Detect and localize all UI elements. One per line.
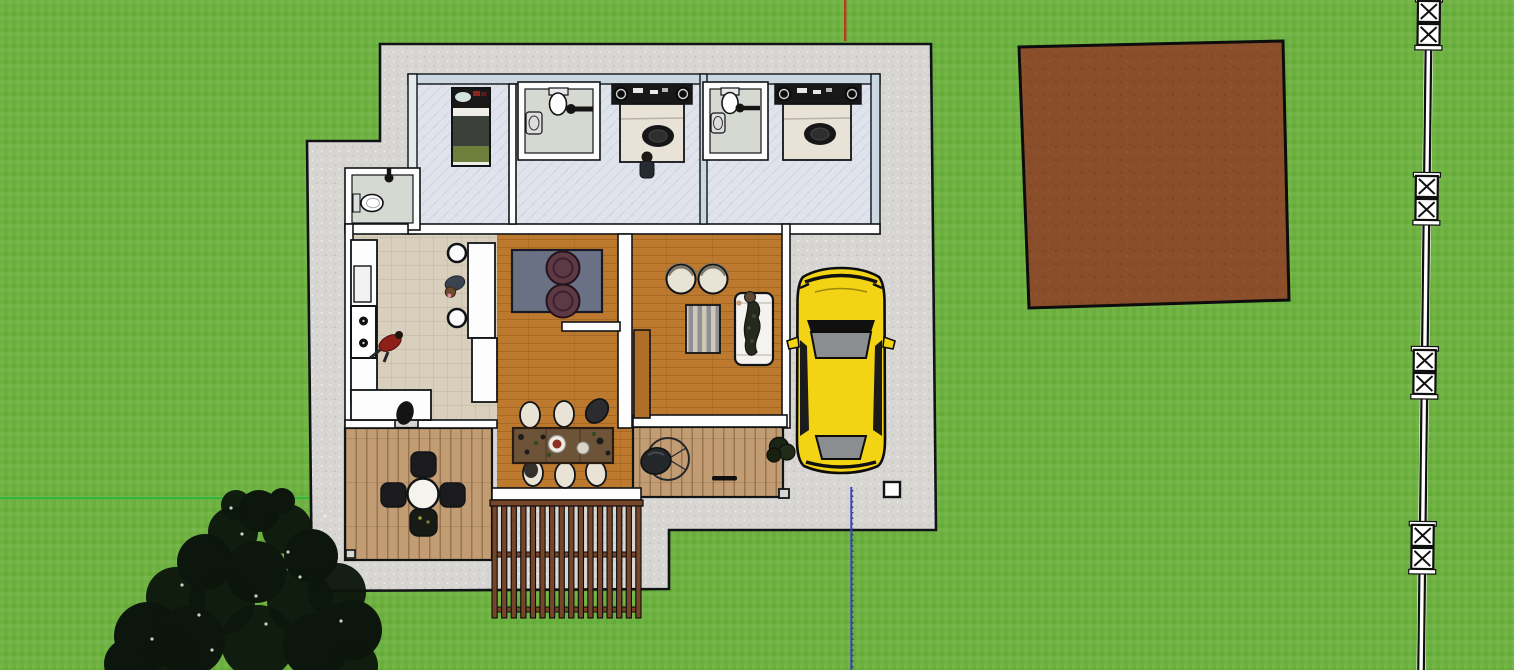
deck-corner-post [779, 489, 789, 498]
cowl [807, 320, 875, 332]
foliage-highlight [254, 594, 257, 597]
kitchen-counter-south[interactable] [351, 390, 431, 420]
wall-right-bedband [871, 74, 880, 234]
wall-tvroom-bottom [633, 415, 787, 427]
wall-top [408, 74, 880, 84]
bathroom-b[interactable] [703, 82, 768, 160]
foliage-highlight [240, 532, 243, 535]
pergola-slat [578, 504, 583, 618]
foliage-highlight [286, 550, 289, 553]
living-room[interactable] [512, 250, 602, 318]
dining-chair[interactable] [554, 401, 574, 427]
stool-1[interactable] [448, 244, 466, 262]
pergola-slat [588, 504, 593, 618]
pergola-slat [617, 504, 622, 618]
deck-post-base [346, 550, 355, 558]
hall-bathroom[interactable] [345, 168, 420, 230]
dining-chair[interactable] [520, 402, 540, 428]
fence-post-cap [1411, 394, 1438, 399]
foliage-highlight [210, 648, 213, 651]
tree-foliage [269, 488, 295, 514]
windshield [811, 332, 871, 358]
toilet-tank [353, 194, 360, 212]
foliage-highlight [150, 637, 153, 640]
scene-svg [0, 0, 1514, 670]
half-wall-living [562, 322, 620, 331]
patio-chair-s[interactable] [410, 509, 437, 536]
dining-set[interactable] [513, 395, 613, 488]
door-mat [712, 476, 737, 481]
wall-kitchen-bottom-1 [345, 420, 395, 428]
foliage-highlight [339, 619, 342, 622]
wall-kitchen-top [345, 224, 408, 234]
pergola-slat [521, 504, 526, 618]
pergola-slat [569, 504, 574, 618]
wall-east [782, 224, 790, 428]
stove[interactable] [351, 306, 376, 358]
yellow-car[interactable] [787, 268, 895, 473]
armchair-1[interactable] [667, 265, 696, 294]
pergola-top-beam [490, 500, 643, 506]
kitchen-island-south[interactable] [472, 338, 497, 402]
foliage-highlight [264, 622, 267, 625]
toilet-b[interactable] [722, 93, 738, 114]
bathroom-a[interactable] [518, 82, 600, 160]
tree-foliage [221, 490, 251, 520]
dirt-patch[interactable] [1019, 41, 1289, 308]
double-bed-b[interactable] [775, 84, 861, 160]
single-bed[interactable] [452, 88, 490, 166]
pergola-slat [559, 504, 564, 618]
pergola-slat [492, 504, 497, 618]
wall-dining-bottom [492, 488, 641, 500]
striped-rug[interactable] [686, 305, 720, 353]
pergola-slat [607, 504, 612, 618]
axis-red-line [844, 0, 846, 41]
foliage-highlight [197, 613, 200, 616]
wall-kitchen-bottom-2 [418, 420, 497, 428]
sink-a[interactable] [526, 112, 542, 134]
pouf-2[interactable] [547, 285, 580, 318]
kitchen-sink[interactable] [354, 266, 371, 302]
patio-chair-n[interactable] [411, 452, 436, 477]
foliage-highlight [298, 575, 301, 578]
foliage-highlight [229, 506, 232, 509]
pergola-slat [597, 504, 602, 618]
utility-box[interactable] [884, 482, 900, 497]
fence-post-cap [1409, 569, 1436, 574]
rear-window [816, 436, 866, 459]
wall-bedband-bottom [408, 224, 880, 234]
pillow [455, 92, 472, 103]
patio-chair-w[interactable] [381, 483, 406, 507]
fence-post-cap [1415, 45, 1442, 50]
axis-blue-line [850, 487, 852, 670]
armchair-2[interactable] [699, 265, 728, 294]
sofa[interactable] [735, 292, 773, 366]
pergola-slat [530, 504, 535, 618]
patio-table[interactable] [408, 479, 439, 510]
toilet-a[interactable] [550, 93, 567, 115]
dining-chair[interactable] [555, 462, 575, 488]
pergola-slat [540, 504, 545, 618]
patio-chair-e[interactable] [440, 483, 465, 507]
person-body [640, 161, 654, 178]
viewport [0, 0, 1514, 670]
pergola-slat [502, 504, 507, 618]
foliage-highlight [180, 583, 183, 586]
blanket [453, 146, 489, 162]
foliage-highlight [323, 514, 326, 517]
jacket-on-chair [524, 462, 538, 478]
wall-room1-suiteA [509, 84, 516, 224]
pergola-slat [626, 504, 631, 618]
pergola-slat [636, 504, 641, 618]
fence-post-cap [1413, 220, 1440, 225]
pergola-slat [550, 504, 555, 618]
plate-small [577, 442, 589, 454]
stool-2[interactable] [448, 309, 466, 327]
pergola-slat [511, 504, 516, 618]
pouf-1[interactable] [547, 252, 580, 285]
tv-sideboard[interactable] [634, 330, 650, 418]
kitchen-island[interactable] [468, 243, 495, 338]
